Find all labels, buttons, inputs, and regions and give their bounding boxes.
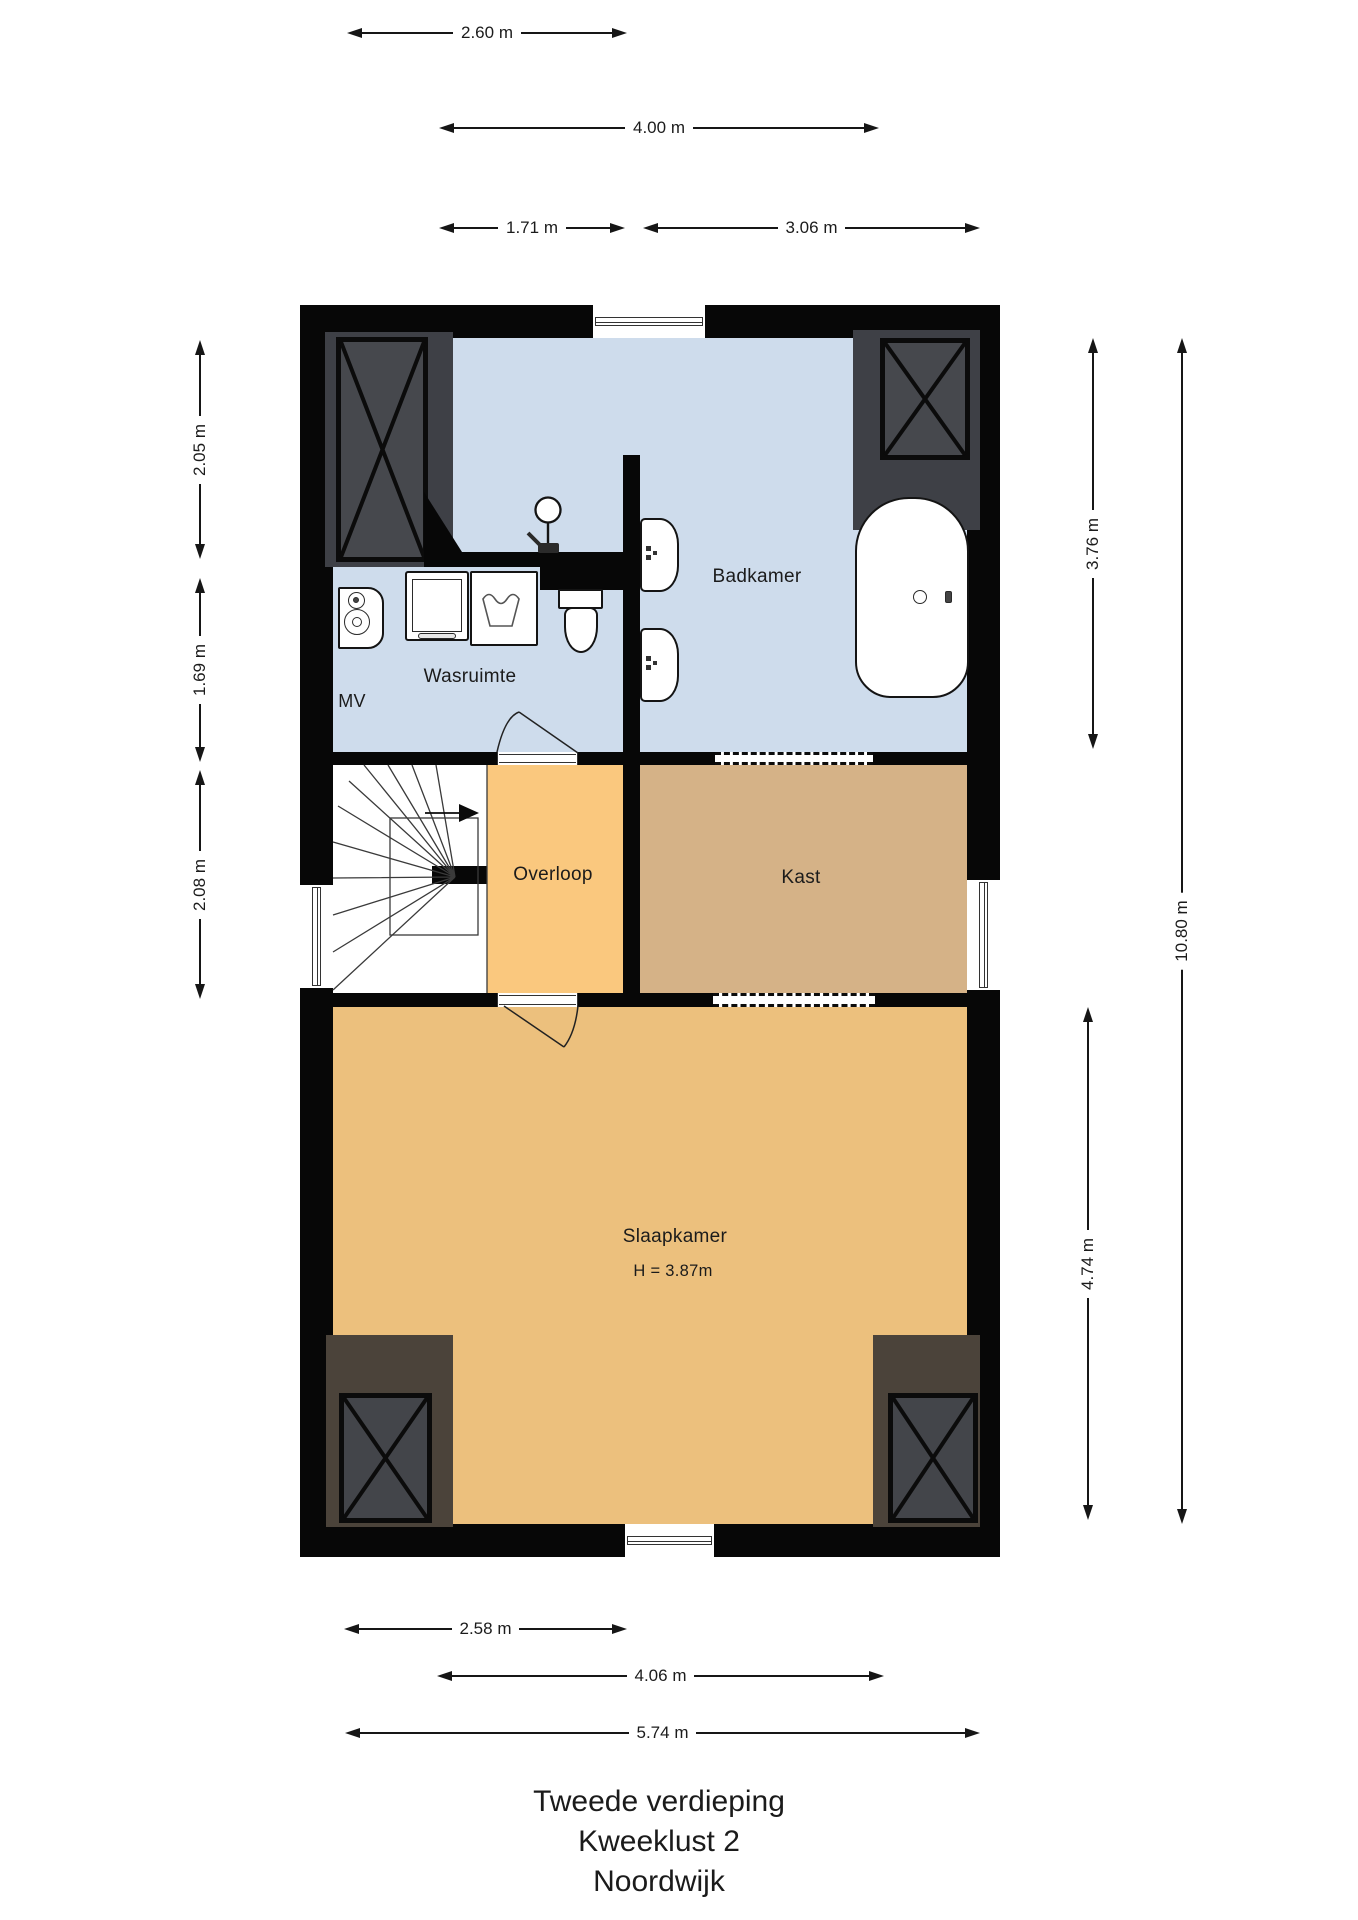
wall-segment <box>578 993 713 1007</box>
wall-segment <box>873 752 967 765</box>
title-line-street: Kweeklust 2 <box>329 1822 989 1862</box>
washing-machine-door <box>418 633 456 639</box>
plan-title: Tweede verdieping Kweeklust 2 Noordwijk <box>329 1782 989 1902</box>
chimney-bottom-right-panel <box>888 1393 978 1523</box>
dimension-label: 10.80 m <box>1172 892 1192 969</box>
wall-segment <box>455 552 623 567</box>
window-right <box>967 880 1000 990</box>
laundry-sink-icon <box>470 571 538 646</box>
mv-fan-large-hub <box>352 617 362 627</box>
room-label-mv: MV <box>312 691 392 712</box>
dimension-label: 4.74 m <box>1078 1230 1098 1298</box>
mv-fan-small-hub <box>353 597 359 603</box>
room-label-ceiling-height: H = 3.87m <box>573 1262 773 1281</box>
room-label-wasruimte: Wasruimte <box>370 666 570 688</box>
washing-machine-drum <box>412 579 462 632</box>
open-passage-badkamer-kast <box>715 752 873 765</box>
bathtub-drain-icon <box>913 590 927 604</box>
stair-direction-arrow <box>425 804 479 822</box>
wall-segment <box>300 1524 625 1557</box>
room-label-slaapkamer: Slaapkamer <box>575 1226 775 1248</box>
dimension-label: 4.00 m <box>625 118 693 138</box>
title-line-floor: Tweede verdieping <box>329 1782 989 1822</box>
room-label-kast: Kast <box>701 867 901 889</box>
room-label-overloop: Overloop <box>453 864 653 886</box>
shaft-top-left-panel <box>336 337 428 562</box>
dimension-label: 2.08 m <box>190 851 210 919</box>
dimension-label: 2.58 m <box>452 1619 520 1639</box>
window-glass <box>627 1536 712 1545</box>
room-label-badkamer: Badkamer <box>657 566 857 588</box>
toilet-tank-icon <box>558 589 603 609</box>
open-passage-kast-slaapkamer <box>713 993 875 1007</box>
window-glass <box>595 317 703 326</box>
bathtub-tap-icon <box>945 591 952 603</box>
window-top <box>593 305 705 338</box>
wall-segment <box>333 752 497 765</box>
wall-segment <box>578 752 715 765</box>
wall-segment <box>540 567 623 590</box>
title-line-city: Noordwijk <box>329 1862 989 1902</box>
dimension-label: 3.06 m <box>778 218 846 238</box>
wall-segment <box>875 993 967 1007</box>
wall-segment <box>333 993 497 1007</box>
wall-segment <box>623 455 640 993</box>
door-sill-overloop-slaapkamer <box>497 993 578 1007</box>
window-left <box>300 885 333 988</box>
dimension-label: 1.71 m <box>498 218 566 238</box>
chimney-bottom-left-panel <box>339 1393 432 1523</box>
dimension-label: 3.76 m <box>1083 510 1103 578</box>
window-glass <box>979 882 988 988</box>
wall-segment <box>714 1524 1000 1557</box>
dimension-label: 2.05 m <box>190 416 210 484</box>
dimension-label: 5.74 m <box>629 1723 697 1743</box>
floorplan-page: Badkamer Wasruimte MV Overloop Kast Slaa… <box>0 0 1358 1920</box>
door-sill-wasruimte-overloop <box>497 752 578 765</box>
window-bottom <box>625 1524 714 1557</box>
shaft-top-right-panel <box>880 338 970 460</box>
washbasin-icon <box>640 628 679 702</box>
dimension-label: 2.60 m <box>453 23 521 43</box>
dimension-label: 1.69 m <box>190 636 210 704</box>
dimension-label: 4.06 m <box>627 1666 695 1686</box>
window-glass <box>312 887 321 986</box>
